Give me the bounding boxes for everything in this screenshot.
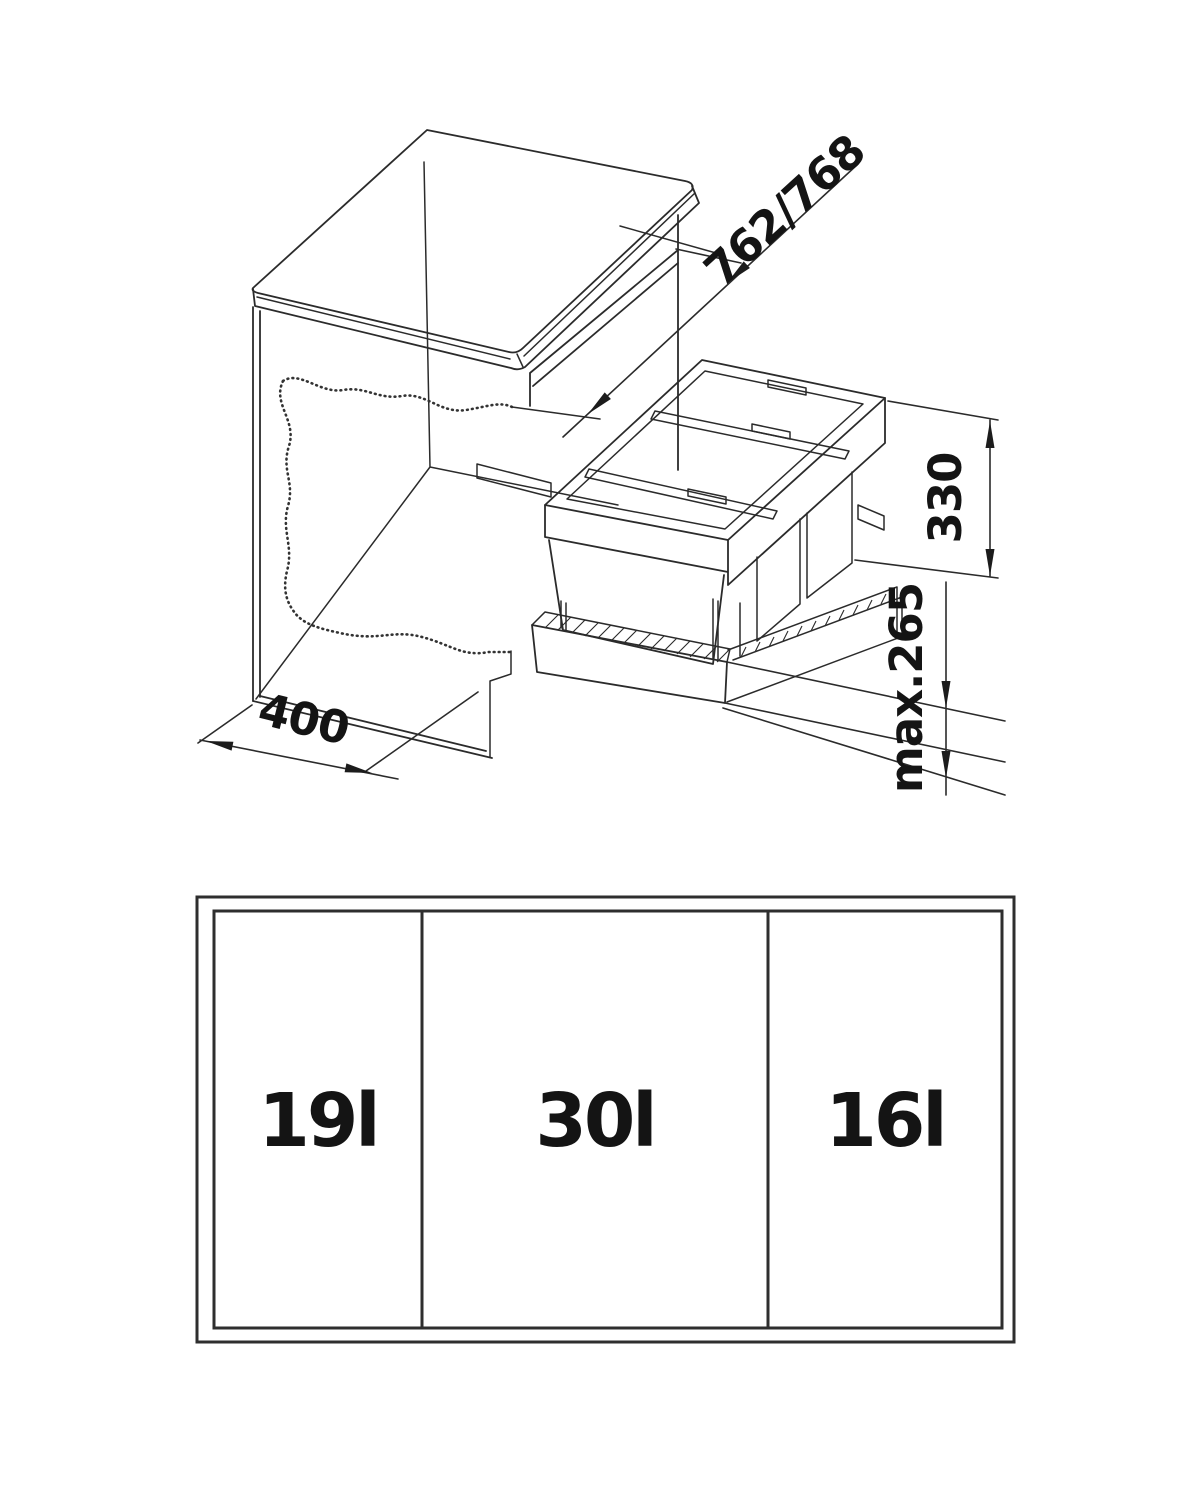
right-bins <box>757 472 852 641</box>
bag-clip-mid <box>752 424 790 439</box>
countertop-thickness <box>253 186 699 369</box>
arrowhead <box>986 421 995 448</box>
arrowhead <box>345 763 372 773</box>
countertop-corner <box>517 354 523 367</box>
arrowhead <box>206 741 233 751</box>
dimension-label-cabinet-width: 400 <box>253 682 354 755</box>
slide-rail <box>477 464 551 497</box>
cabinet-isometric <box>253 130 716 758</box>
bin-unit <box>532 360 902 703</box>
rear-bracket <box>858 505 884 530</box>
bin-capacity-right: 16l <box>825 1078 944 1164</box>
cross-rail-1 <box>651 411 849 459</box>
break-line-side <box>280 381 510 653</box>
bin-posts <box>561 599 740 661</box>
base-right-strip <box>727 587 902 702</box>
arrowhead <box>588 392 611 414</box>
bin-capacity-middle: 30l <box>535 1078 654 1164</box>
cross-rail-2 <box>585 469 777 519</box>
countertop-bullnose <box>257 193 695 359</box>
frame-outer-rim <box>545 360 885 540</box>
arrowhead <box>942 681 951 708</box>
dimension-label-unit-height: 330 <box>919 453 972 544</box>
dimensions: 762/768 330 max.265 400 <box>198 124 1005 795</box>
left-panel-edge <box>253 307 260 701</box>
break-line-top <box>283 378 512 410</box>
dim-line-front <box>723 582 1005 795</box>
technical-drawing-page: 762/768 330 max.265 400 19l 30l 16l <box>0 0 1200 1488</box>
base-right-hatch <box>741 594 886 657</box>
floor-notch <box>490 651 511 757</box>
dimension-label-front-max: max.265 <box>880 583 933 793</box>
waste-bin-cabinet-diagram: 762/768 330 max.265 400 19l 30l 16l <box>0 0 1200 1488</box>
front-view-schematic: 19l 30l 16l <box>197 897 1014 1342</box>
interior-lines <box>256 162 716 699</box>
arrowhead <box>942 751 951 778</box>
countertop-top <box>253 130 693 353</box>
bin-capacity-left: 19l <box>258 1078 377 1164</box>
base-carriage <box>532 625 727 703</box>
frame-aprons <box>545 398 885 585</box>
dimension-label-niche-width: 762/768 <box>694 124 875 296</box>
arrowhead <box>986 549 995 576</box>
